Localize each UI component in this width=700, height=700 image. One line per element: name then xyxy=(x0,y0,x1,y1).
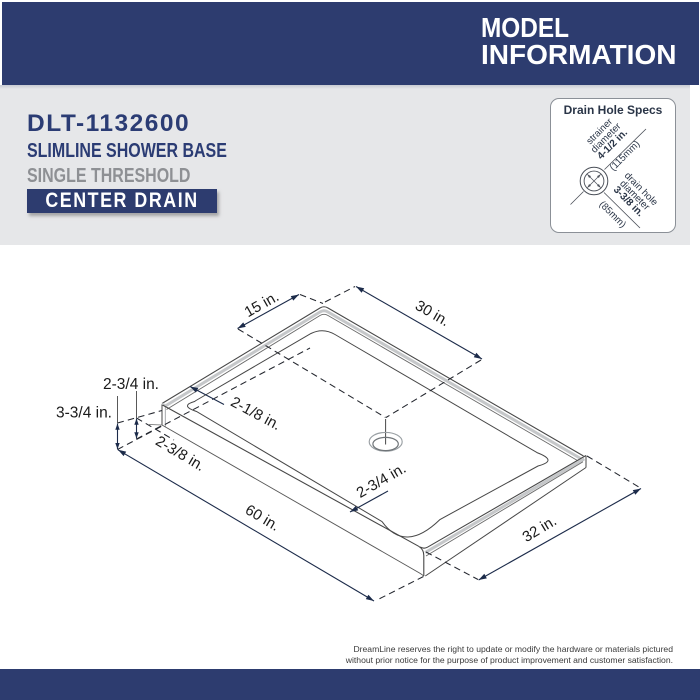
svg-text:2-3/4 in.: 2-3/4 in. xyxy=(103,376,159,393)
svg-text:3-3/4 in.: 3-3/4 in. xyxy=(56,405,112,422)
svg-text:2-3/4 in.: 2-3/4 in. xyxy=(354,460,409,502)
svg-text:60 in.: 60 in. xyxy=(242,501,282,534)
svg-text:2-3/8 in.: 2-3/8 in. xyxy=(152,433,207,475)
svg-text:30 in.: 30 in. xyxy=(412,297,452,330)
svg-text:15 in.: 15 in. xyxy=(242,288,282,321)
svg-text:32 in.: 32 in. xyxy=(520,512,560,545)
svg-text:2-1/8 in.: 2-1/8 in. xyxy=(228,393,284,433)
